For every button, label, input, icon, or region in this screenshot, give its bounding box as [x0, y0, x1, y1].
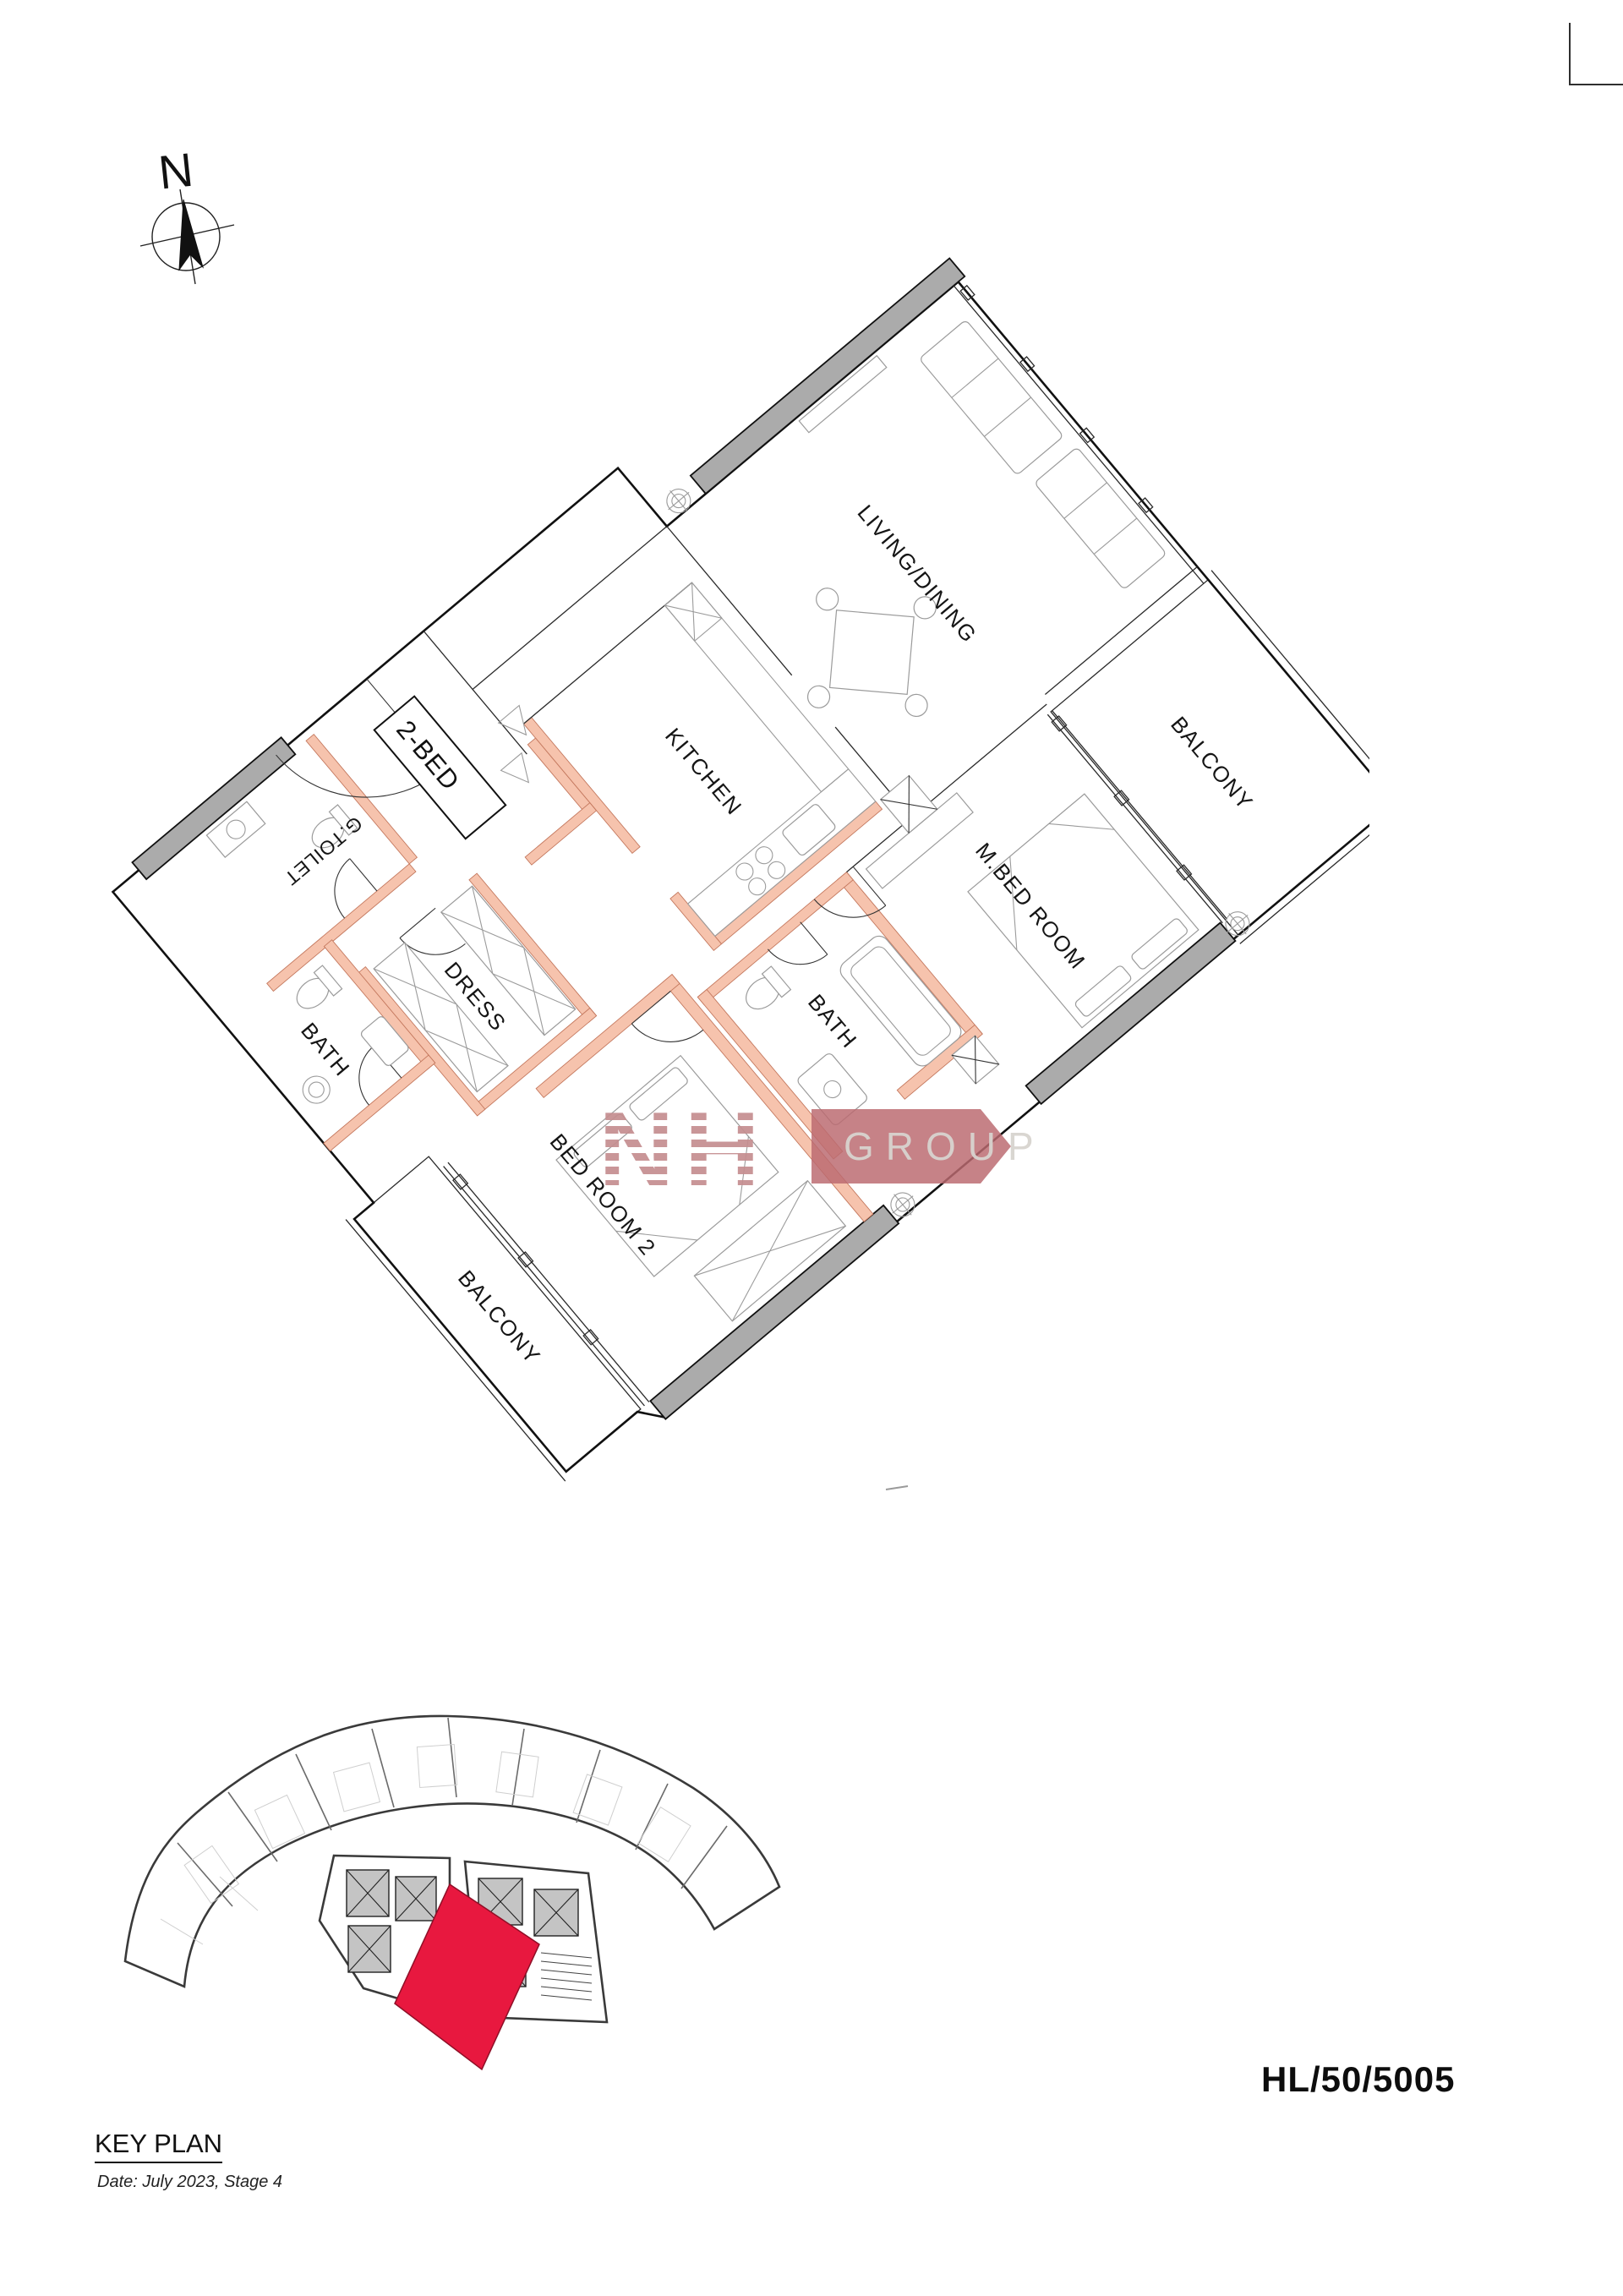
page: { "document": { "unit_code": "HL/50/5005…	[0, 0, 1623, 2296]
label-master-bath: BATH	[803, 989, 862, 1053]
watermark-word: GROUP	[844, 1124, 1046, 1168]
stray-mark	[886, 1486, 908, 1490]
unit-code: HL/50/5005	[1261, 2059, 1455, 2100]
floor-plan: LIVING/DINING KITCHEN M.BED ROOM BALCONY…	[51, 220, 1369, 1539]
label-balcony-right: BALCONY	[1166, 712, 1259, 816]
partition-walls	[118, 485, 1078, 1455]
compass-north-label: N	[156, 143, 196, 200]
apartment-plan-rotated: LIVING/DINING KITCHEN M.BED ROOM BALCONY…	[82, 220, 1369, 1498]
label-kitchen: KITCHEN	[660, 723, 747, 820]
exterior-wall-entry-band	[132, 737, 295, 879]
living-furniture	[666, 295, 1167, 791]
exterior-wall-top-band	[691, 258, 965, 494]
door-swings	[158, 517, 886, 1243]
key-plan-date: Date: July 2023, Stage 4	[97, 2173, 282, 2192]
corner-mark	[1569, 23, 1623, 85]
label-guest-bath: BATH	[296, 1018, 355, 1082]
key-plan	[85, 1708, 811, 2105]
unit-type-tag: 2-BED	[374, 697, 505, 839]
key-plan-title: KEY PLAN	[95, 2129, 222, 2163]
watermark-monogram: NH	[598, 1091, 770, 1208]
